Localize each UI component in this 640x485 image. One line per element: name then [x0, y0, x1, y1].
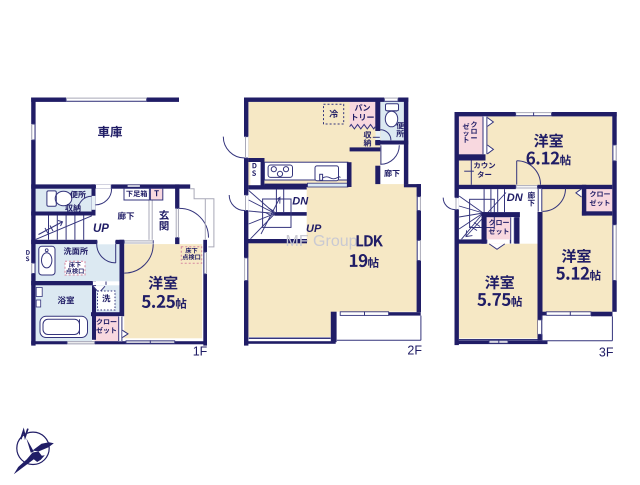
svg-text:MF Group: MF Group [286, 233, 358, 250]
svg-text:3F: 3F [599, 345, 614, 359]
svg-text:DN: DN [292, 195, 309, 207]
svg-text:DN: DN [507, 192, 524, 204]
svg-text:1F: 1F [193, 344, 208, 358]
svg-text:2F: 2F [407, 344, 422, 358]
svg-text:UP: UP [93, 223, 109, 235]
